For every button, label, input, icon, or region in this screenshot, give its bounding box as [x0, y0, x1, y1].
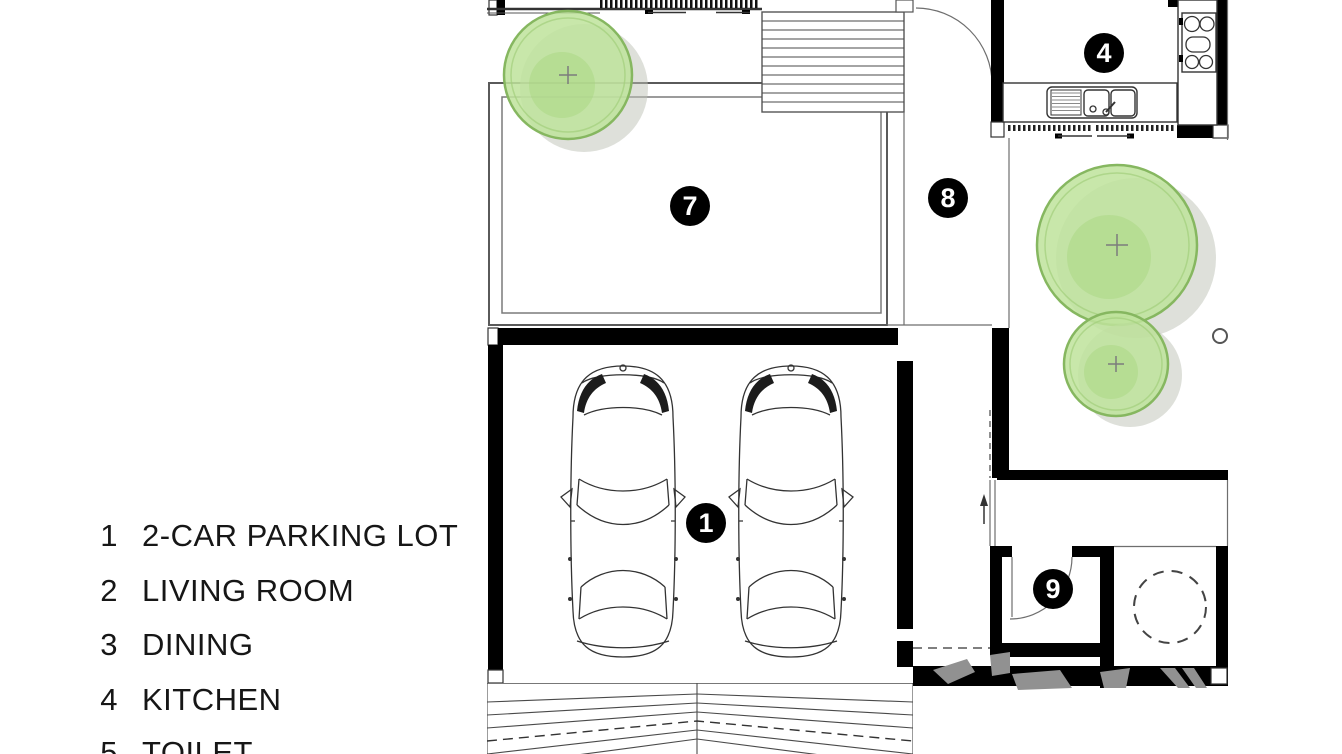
deck	[762, 0, 913, 112]
badge-parking: 1	[686, 503, 726, 543]
small-column-circle	[1213, 329, 1227, 343]
entry-arrow	[980, 494, 988, 524]
floor-plan-page: 1 4 7 8 9 1 2-CAR PARKING LOT 2 LIVING R…	[0, 0, 1342, 754]
legend-label: TOILET	[142, 735, 253, 754]
legend-label: 2-CAR PARKING LOT	[142, 518, 458, 554]
legend-item: 1 2-CAR PARKING LOT	[88, 518, 458, 554]
svg-text:4: 4	[1096, 38, 1111, 68]
badge-side-yard: 8	[928, 178, 968, 218]
legend-item: 5 TOILET	[88, 735, 253, 754]
legend-number: 5	[88, 735, 118, 754]
svg-text:1: 1	[698, 508, 713, 538]
driveway-ramp	[487, 683, 913, 754]
tree	[504, 11, 648, 152]
sink-basin	[1084, 90, 1109, 116]
legend-item: 2 LIVING ROOM	[88, 573, 354, 609]
car-right	[729, 365, 853, 657]
legend-number: 1	[88, 518, 118, 554]
svg-text:9: 9	[1045, 574, 1060, 604]
drainboard	[1051, 90, 1081, 115]
legend-label: DINING	[142, 627, 254, 663]
door-arc-top	[916, 8, 992, 84]
legend-number: 3	[88, 627, 118, 663]
badge-pool-terrace: 7	[670, 186, 710, 226]
car-left	[561, 365, 685, 657]
svg-text:7: 7	[682, 191, 697, 221]
legend-item: 4 KITCHEN	[88, 682, 282, 718]
svg-text:8: 8	[940, 183, 955, 213]
legend-label: LIVING ROOM	[142, 573, 354, 609]
legend-item: 3 DINING	[88, 627, 254, 663]
legend-number: 2	[88, 573, 118, 609]
legend-label: KITCHEN	[142, 682, 282, 718]
legend-number: 4	[88, 682, 118, 718]
badge-kitchen: 4	[1084, 33, 1124, 73]
top-wall	[487, 0, 762, 15]
dashed-circle-fixture	[1134, 571, 1206, 643]
badge-toilet: 9	[1033, 569, 1073, 609]
